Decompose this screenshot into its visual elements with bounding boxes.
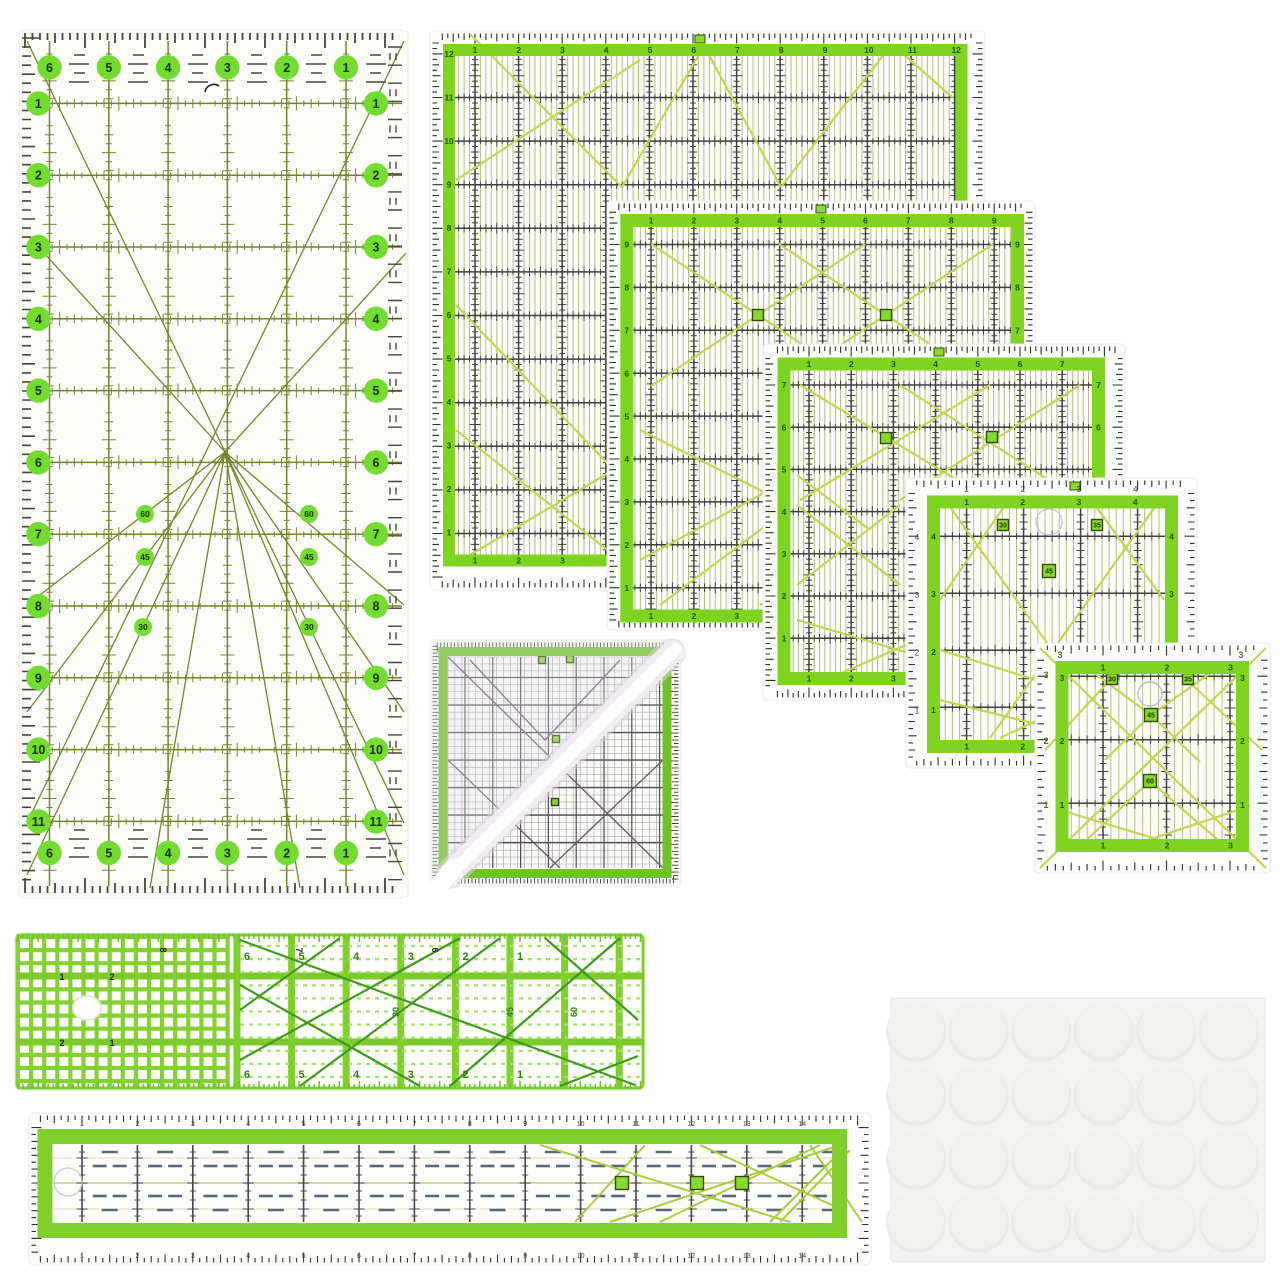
svg-text:5: 5 bbox=[648, 45, 653, 55]
svg-text:7: 7 bbox=[624, 326, 629, 336]
svg-text:11: 11 bbox=[445, 93, 454, 103]
svg-text:2: 2 bbox=[1020, 497, 1025, 507]
svg-text:3: 3 bbox=[191, 1121, 195, 1128]
svg-text:2: 2 bbox=[516, 45, 521, 55]
svg-text:3: 3 bbox=[1077, 485, 1082, 494]
svg-text:4: 4 bbox=[373, 312, 380, 326]
svg-text:2: 2 bbox=[462, 951, 468, 963]
svg-text:9: 9 bbox=[447, 180, 452, 190]
svg-text:2: 2 bbox=[692, 216, 697, 226]
svg-text:1: 1 bbox=[649, 611, 654, 621]
svg-text:7: 7 bbox=[1096, 380, 1101, 390]
svg-text:11: 11 bbox=[632, 1121, 639, 1128]
svg-text:3: 3 bbox=[1240, 673, 1245, 683]
svg-text:5: 5 bbox=[302, 1253, 306, 1260]
svg-text:4: 4 bbox=[933, 359, 938, 369]
svg-text:9: 9 bbox=[523, 1121, 527, 1128]
svg-text:14: 14 bbox=[798, 1253, 806, 1260]
svg-text:2: 2 bbox=[1043, 736, 1048, 746]
svg-text:5: 5 bbox=[299, 951, 305, 963]
svg-text:12: 12 bbox=[444, 49, 454, 59]
svg-text:4: 4 bbox=[931, 532, 936, 542]
svg-text:2: 2 bbox=[59, 1038, 64, 1048]
svg-text:2: 2 bbox=[1165, 841, 1170, 851]
svg-text:3: 3 bbox=[447, 441, 452, 451]
svg-text:5: 5 bbox=[105, 61, 112, 75]
svg-text:2: 2 bbox=[849, 674, 854, 684]
svg-text:3: 3 bbox=[931, 589, 936, 599]
svg-text:11: 11 bbox=[632, 1253, 639, 1260]
svg-text:5: 5 bbox=[299, 1069, 305, 1081]
svg-text:45: 45 bbox=[1147, 713, 1155, 720]
svg-text:2: 2 bbox=[447, 484, 452, 494]
svg-text:13: 13 bbox=[743, 1253, 751, 1260]
svg-text:1: 1 bbox=[517, 1069, 523, 1081]
svg-text:30: 30 bbox=[391, 1007, 401, 1017]
svg-text:2: 2 bbox=[1021, 485, 1026, 494]
svg-text:1: 1 bbox=[964, 497, 969, 507]
svg-text:3: 3 bbox=[1238, 650, 1243, 660]
svg-text:1: 1 bbox=[782, 633, 787, 643]
svg-text:6: 6 bbox=[244, 951, 250, 963]
svg-text:10: 10 bbox=[444, 136, 454, 146]
svg-text:8: 8 bbox=[468, 1121, 472, 1128]
svg-text:35: 35 bbox=[1184, 677, 1192, 684]
svg-text:1: 1 bbox=[447, 528, 452, 538]
svg-text:3: 3 bbox=[35, 241, 42, 255]
svg-text:8: 8 bbox=[447, 223, 452, 233]
svg-text:6: 6 bbox=[1096, 423, 1101, 433]
svg-text:1: 1 bbox=[624, 583, 629, 593]
svg-text:7: 7 bbox=[1060, 359, 1065, 369]
svg-text:1: 1 bbox=[1240, 800, 1245, 810]
svg-text:4: 4 bbox=[165, 847, 172, 861]
svg-text:4: 4 bbox=[1133, 485, 1138, 494]
svg-text:2: 2 bbox=[135, 1253, 139, 1260]
svg-text:10: 10 bbox=[369, 743, 383, 757]
svg-text:45: 45 bbox=[505, 1007, 515, 1017]
svg-text:3: 3 bbox=[734, 216, 739, 226]
svg-text:1: 1 bbox=[807, 674, 812, 684]
svg-text:10: 10 bbox=[577, 1121, 585, 1128]
svg-text:60: 60 bbox=[304, 509, 314, 519]
svg-text:6: 6 bbox=[1018, 359, 1023, 369]
svg-text:10: 10 bbox=[864, 45, 874, 55]
svg-text:9: 9 bbox=[823, 45, 828, 55]
svg-text:30: 30 bbox=[999, 523, 1007, 530]
svg-text:5: 5 bbox=[373, 384, 380, 398]
svg-text:4: 4 bbox=[165, 61, 172, 75]
svg-text:3: 3 bbox=[408, 951, 414, 963]
svg-text:7: 7 bbox=[782, 380, 787, 390]
svg-text:8: 8 bbox=[373, 600, 380, 614]
svg-text:3: 3 bbox=[560, 556, 565, 566]
svg-text:2: 2 bbox=[109, 972, 114, 982]
svg-text:3: 3 bbox=[915, 591, 920, 600]
svg-text:6: 6 bbox=[863, 216, 868, 226]
svg-text:4: 4 bbox=[447, 397, 452, 407]
svg-text:4: 4 bbox=[35, 312, 42, 326]
svg-text:3: 3 bbox=[408, 1069, 414, 1081]
svg-text:30: 30 bbox=[138, 622, 148, 632]
svg-text:8: 8 bbox=[779, 45, 784, 55]
svg-text:6: 6 bbox=[46, 847, 53, 861]
svg-text:8: 8 bbox=[468, 1253, 472, 1260]
svg-text:5: 5 bbox=[447, 354, 452, 364]
svg-text:2: 2 bbox=[462, 1069, 468, 1081]
svg-text:6: 6 bbox=[373, 456, 380, 470]
svg-text:4: 4 bbox=[246, 1253, 250, 1260]
svg-text:10: 10 bbox=[577, 1253, 585, 1260]
svg-text:11: 11 bbox=[32, 815, 45, 829]
svg-text:1: 1 bbox=[964, 742, 969, 752]
svg-text:7: 7 bbox=[412, 1121, 416, 1128]
svg-text:2: 2 bbox=[849, 359, 854, 369]
svg-text:1: 1 bbox=[473, 45, 478, 55]
svg-text:60: 60 bbox=[140, 509, 150, 519]
svg-text:30: 30 bbox=[1108, 677, 1116, 684]
svg-text:3: 3 bbox=[1077, 497, 1082, 507]
svg-text:2: 2 bbox=[516, 556, 521, 566]
svg-text:1: 1 bbox=[343, 847, 350, 861]
svg-text:3: 3 bbox=[191, 1253, 195, 1260]
svg-text:3: 3 bbox=[734, 611, 739, 621]
svg-text:3: 3 bbox=[1057, 650, 1062, 660]
svg-text:4: 4 bbox=[624, 454, 629, 464]
svg-text:1: 1 bbox=[59, 972, 64, 982]
svg-text:9: 9 bbox=[1015, 240, 1020, 250]
svg-text:4: 4 bbox=[353, 951, 360, 963]
svg-text:1: 1 bbox=[1043, 800, 1048, 810]
svg-text:6: 6 bbox=[357, 1121, 361, 1128]
svg-text:5: 5 bbox=[820, 216, 825, 226]
svg-text:3: 3 bbox=[224, 847, 231, 861]
svg-text:3: 3 bbox=[1228, 663, 1233, 673]
svg-text:8: 8 bbox=[949, 216, 954, 226]
svg-text:3: 3 bbox=[782, 549, 787, 559]
svg-text:3: 3 bbox=[1060, 673, 1065, 683]
svg-text:60: 60 bbox=[569, 1007, 579, 1017]
svg-text:4: 4 bbox=[246, 1121, 250, 1128]
svg-text:60: 60 bbox=[1146, 779, 1154, 786]
svg-text:6: 6 bbox=[46, 61, 53, 75]
svg-text:1: 1 bbox=[473, 556, 478, 566]
svg-text:12: 12 bbox=[951, 45, 961, 55]
svg-text:5: 5 bbox=[35, 384, 42, 398]
svg-text:8: 8 bbox=[35, 600, 42, 614]
svg-text:2: 2 bbox=[692, 611, 697, 621]
svg-text:10: 10 bbox=[31, 743, 45, 757]
svg-text:1: 1 bbox=[80, 1253, 84, 1260]
svg-text:5: 5 bbox=[302, 1121, 306, 1128]
svg-text:1: 1 bbox=[964, 485, 969, 494]
svg-text:11: 11 bbox=[369, 815, 382, 829]
svg-text:2: 2 bbox=[915, 649, 920, 658]
svg-text:9: 9 bbox=[373, 671, 380, 685]
svg-text:4: 4 bbox=[777, 216, 782, 226]
svg-text:4: 4 bbox=[1169, 532, 1174, 542]
svg-text:5: 5 bbox=[105, 847, 112, 861]
svg-text:4: 4 bbox=[915, 533, 920, 542]
svg-text:3: 3 bbox=[1228, 841, 1233, 851]
svg-text:35: 35 bbox=[1093, 523, 1101, 530]
svg-text:1: 1 bbox=[931, 705, 936, 715]
svg-text:2: 2 bbox=[624, 540, 629, 550]
svg-text:8: 8 bbox=[624, 283, 629, 293]
svg-text:3: 3 bbox=[891, 359, 896, 369]
svg-text:1: 1 bbox=[517, 951, 523, 963]
svg-text:7: 7 bbox=[412, 1253, 416, 1260]
svg-text:4: 4 bbox=[1133, 497, 1138, 507]
svg-text:2: 2 bbox=[35, 169, 42, 183]
svg-text:2: 2 bbox=[283, 847, 290, 861]
svg-text:6: 6 bbox=[691, 45, 696, 55]
svg-text:4: 4 bbox=[782, 507, 787, 517]
svg-text:2: 2 bbox=[1060, 736, 1065, 746]
svg-text:6: 6 bbox=[447, 310, 452, 320]
svg-text:7: 7 bbox=[906, 216, 911, 226]
svg-text:3: 3 bbox=[624, 497, 629, 507]
svg-text:45: 45 bbox=[304, 552, 314, 562]
svg-text:6: 6 bbox=[244, 1069, 250, 1081]
svg-text:4: 4 bbox=[353, 1069, 360, 1081]
svg-text:12: 12 bbox=[688, 1253, 696, 1260]
svg-text:6: 6 bbox=[430, 947, 440, 952]
svg-text:7: 7 bbox=[294, 947, 304, 952]
svg-text:1: 1 bbox=[109, 1038, 114, 1048]
svg-text:5: 5 bbox=[624, 411, 629, 421]
svg-text:2: 2 bbox=[1165, 663, 1170, 673]
svg-text:1: 1 bbox=[649, 216, 654, 226]
svg-text:14: 14 bbox=[798, 1121, 806, 1128]
svg-text:2: 2 bbox=[283, 61, 290, 75]
svg-text:45: 45 bbox=[1045, 569, 1053, 576]
svg-text:3: 3 bbox=[560, 45, 565, 55]
svg-text:45: 45 bbox=[140, 552, 150, 562]
svg-text:11: 11 bbox=[908, 45, 917, 55]
svg-text:8: 8 bbox=[1015, 283, 1020, 293]
svg-text:1: 1 bbox=[915, 706, 920, 715]
svg-text:3: 3 bbox=[891, 674, 896, 684]
svg-text:7: 7 bbox=[447, 267, 452, 277]
svg-text:2: 2 bbox=[373, 169, 380, 183]
svg-text:1: 1 bbox=[1101, 841, 1106, 851]
svg-text:7: 7 bbox=[735, 45, 740, 55]
svg-text:9: 9 bbox=[992, 216, 997, 226]
svg-text:2: 2 bbox=[931, 647, 936, 657]
svg-text:9: 9 bbox=[523, 1253, 527, 1260]
svg-text:1: 1 bbox=[807, 359, 812, 369]
svg-text:6: 6 bbox=[35, 456, 42, 470]
svg-text:3: 3 bbox=[1043, 670, 1048, 680]
svg-text:3: 3 bbox=[373, 241, 380, 255]
svg-text:9: 9 bbox=[624, 240, 629, 250]
svg-text:7: 7 bbox=[373, 528, 380, 542]
svg-text:5: 5 bbox=[975, 359, 980, 369]
svg-text:3: 3 bbox=[1169, 589, 1174, 599]
svg-text:4: 4 bbox=[604, 45, 609, 55]
svg-text:8: 8 bbox=[158, 947, 168, 952]
svg-text:5: 5 bbox=[782, 465, 787, 475]
svg-text:12: 12 bbox=[688, 1121, 696, 1128]
svg-text:1: 1 bbox=[343, 61, 350, 75]
svg-text:6: 6 bbox=[624, 368, 629, 378]
svg-text:2: 2 bbox=[782, 591, 787, 601]
svg-text:2: 2 bbox=[1240, 736, 1245, 746]
svg-text:3: 3 bbox=[224, 61, 231, 75]
svg-text:7: 7 bbox=[1015, 326, 1020, 336]
svg-text:1: 1 bbox=[373, 97, 380, 111]
svg-text:6: 6 bbox=[357, 1253, 361, 1260]
svg-text:1: 1 bbox=[80, 1121, 84, 1128]
svg-text:1: 1 bbox=[1060, 800, 1065, 810]
svg-text:13: 13 bbox=[743, 1121, 751, 1128]
svg-text:2: 2 bbox=[135, 1121, 139, 1128]
svg-text:1: 1 bbox=[1101, 663, 1106, 673]
svg-text:6: 6 bbox=[782, 422, 787, 432]
svg-text:9: 9 bbox=[35, 671, 42, 685]
svg-text:2: 2 bbox=[1020, 742, 1025, 752]
svg-text:7: 7 bbox=[35, 528, 42, 542]
svg-text:1: 1 bbox=[35, 97, 42, 111]
svg-text:30: 30 bbox=[304, 622, 314, 632]
